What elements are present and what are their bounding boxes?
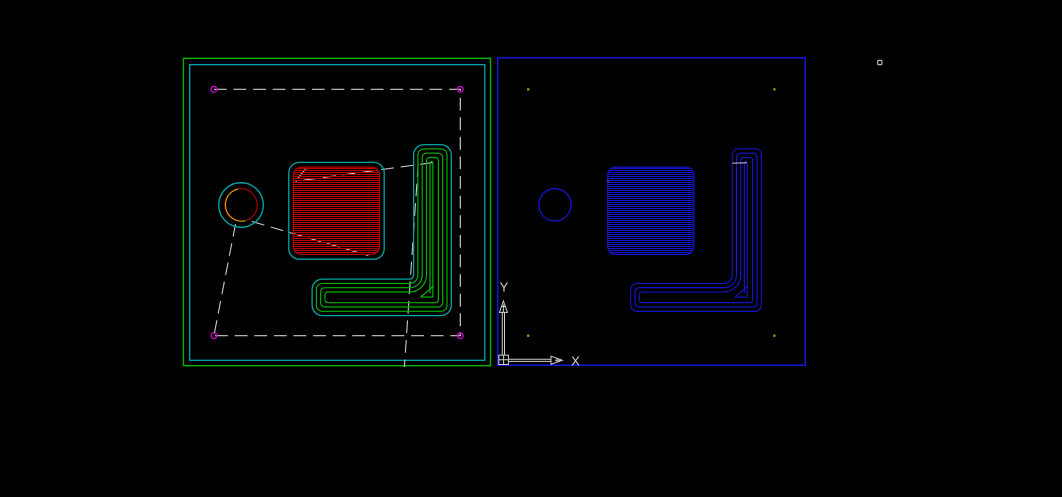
svg-text:Y: Y	[500, 280, 509, 295]
svg-text:X: X	[571, 353, 580, 368]
